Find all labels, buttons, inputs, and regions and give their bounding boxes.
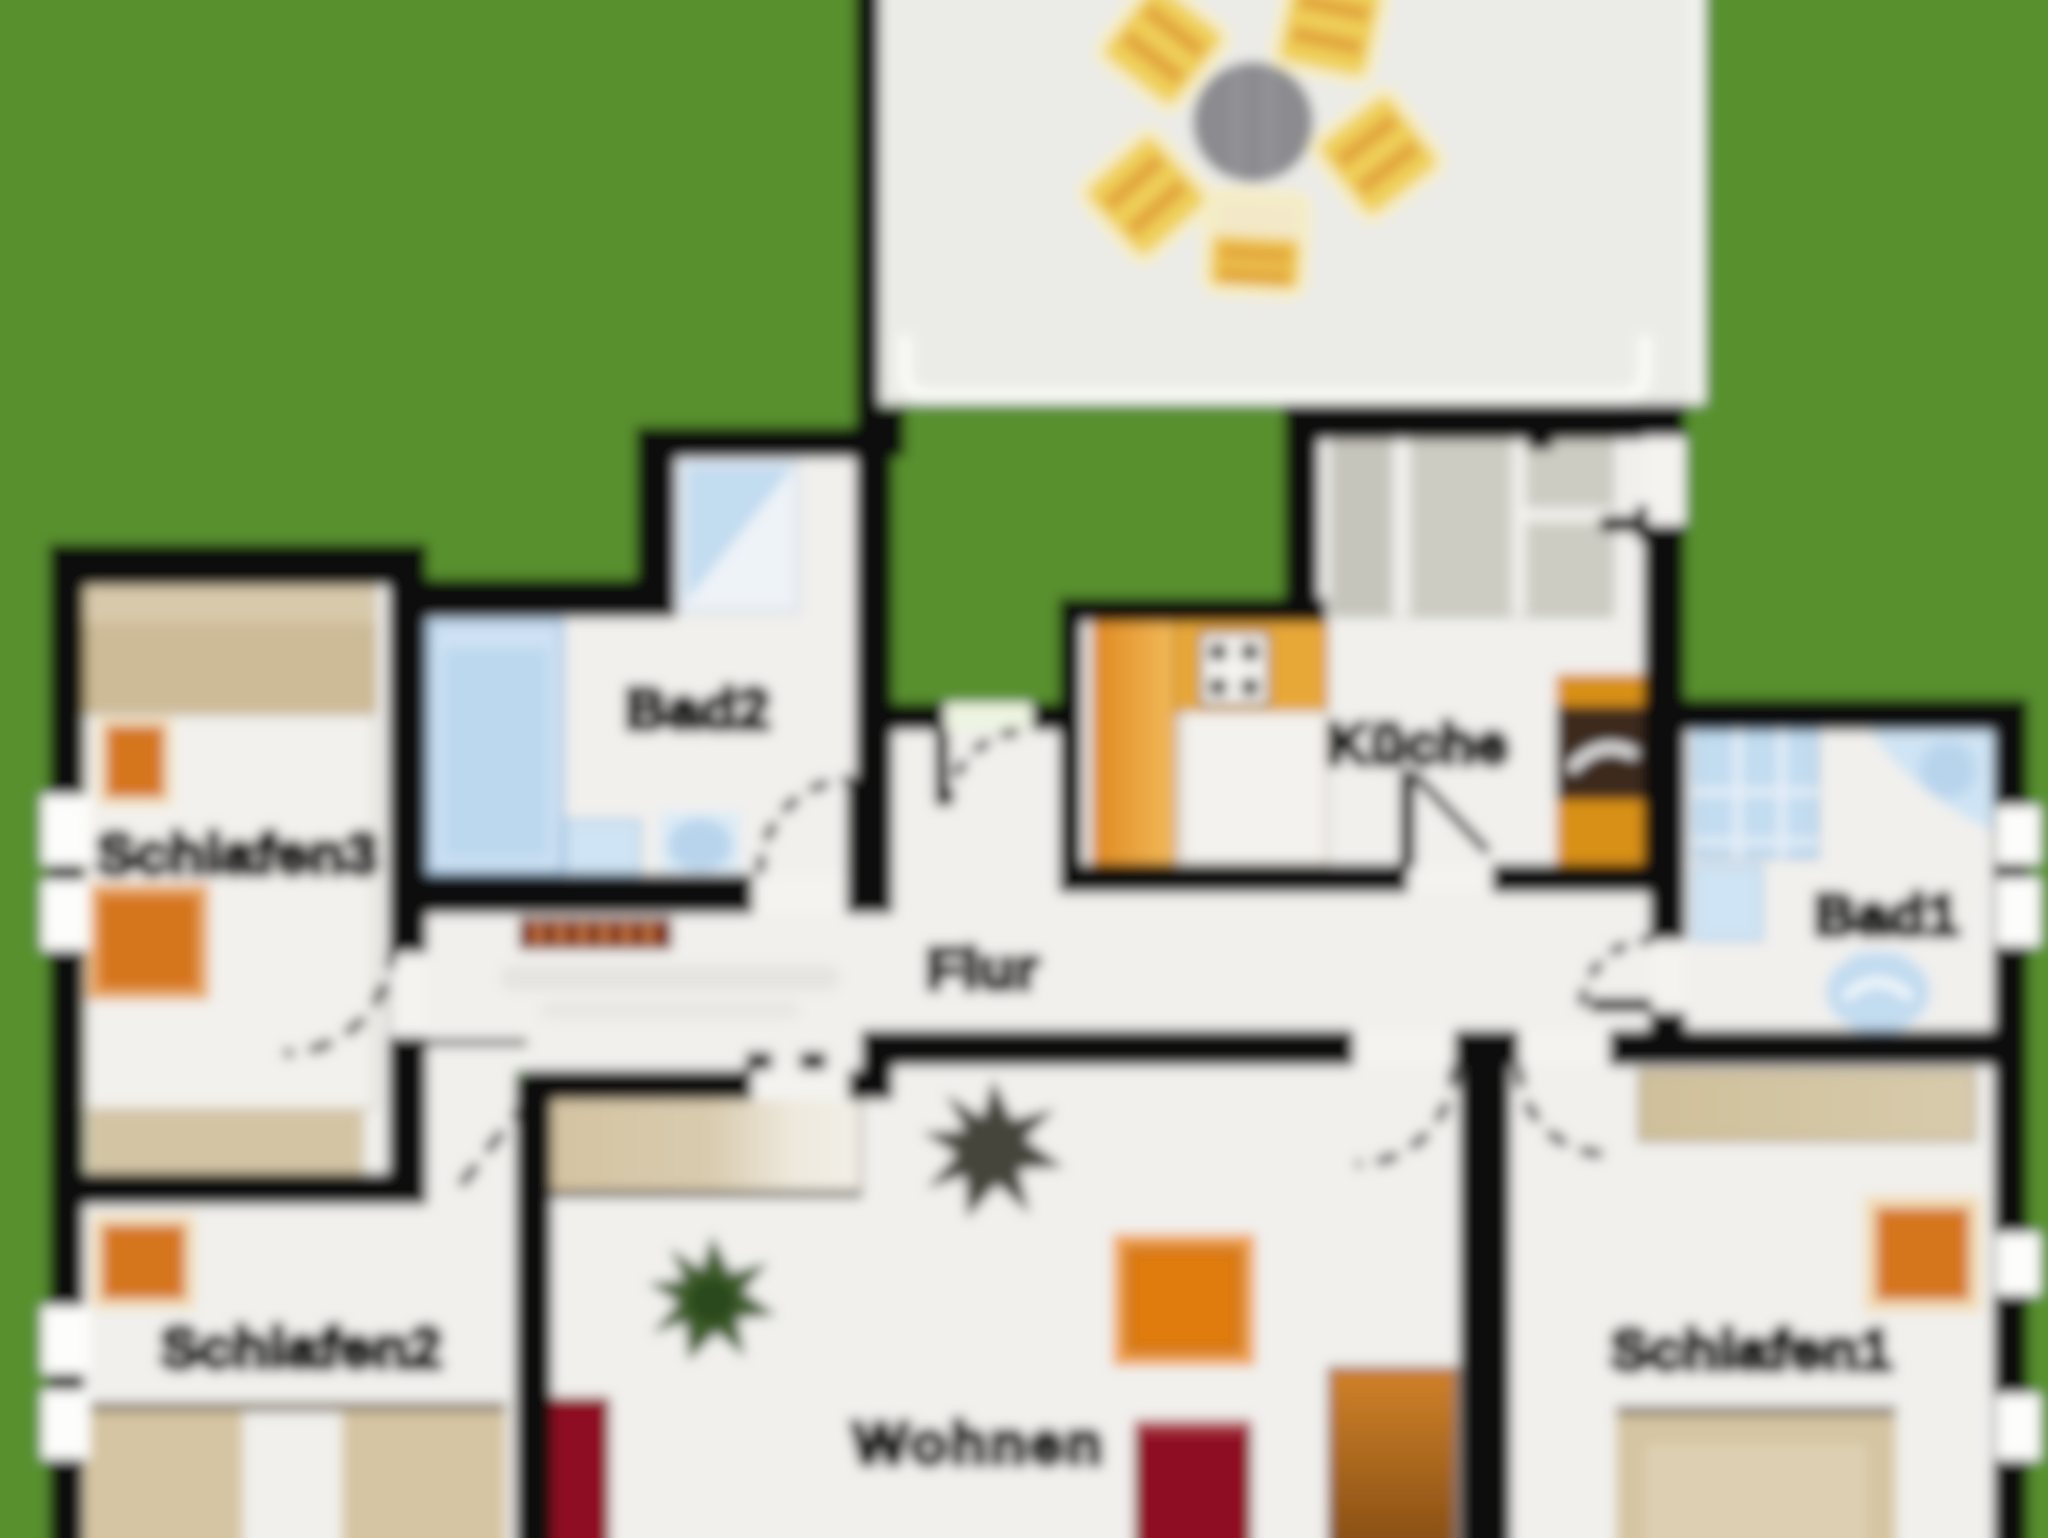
svg-text:Bad2: Bad2 [625, 677, 771, 742]
svg-text:Schlafen1: Schlafen1 [1610, 1318, 1893, 1383]
svg-text:Schlafen2: Schlafen2 [160, 1316, 443, 1381]
svg-text:Küche: Küche [1327, 712, 1509, 777]
svg-text:Flur: Flur [926, 937, 1040, 1002]
svg-text:Schlafen3: Schlafen3 [96, 822, 379, 887]
svg-text:Wohnen: Wohnen [852, 1410, 1106, 1477]
svg-text:Bad1: Bad1 [1814, 883, 1960, 948]
